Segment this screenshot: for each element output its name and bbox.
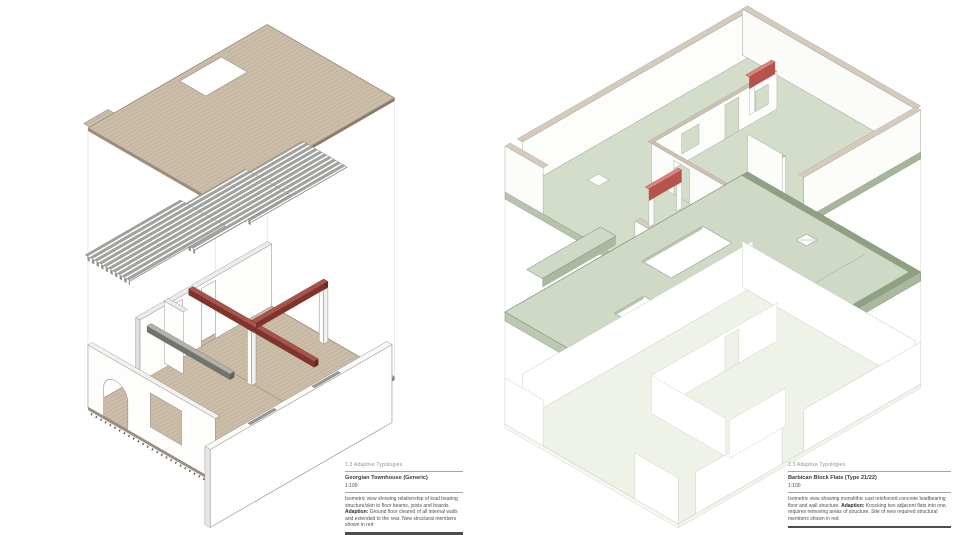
drawing-scale: 1:100 xyxy=(788,483,951,493)
drawing-title: Georgian Townhouse (Generic) xyxy=(345,475,463,482)
facade-end xyxy=(205,447,210,528)
adaption-label: Adaption: xyxy=(841,503,864,509)
caption-barbican: 1.3 Adaptive Typologies Barbican Block F… xyxy=(788,462,951,528)
drawing-sheet xyxy=(0,0,960,528)
barbican-exploded-axonometric xyxy=(505,6,921,528)
adaption-label: Adaption: xyxy=(345,509,368,515)
support-column xyxy=(247,327,256,386)
georgian-exploded-axonometric xyxy=(84,25,395,528)
section-header: 1.3 Adaptive Typologies xyxy=(788,462,951,472)
drawing-description: Isometric view showing monolithic cast r… xyxy=(788,496,951,522)
scale-bar xyxy=(345,532,463,534)
support-pier xyxy=(319,285,328,344)
description-text: Isometric view showing relationship of l… xyxy=(345,496,458,509)
section-header: 1.3 Adaptive Typologies xyxy=(345,462,463,472)
drawing-description: Isometric view showing relationship of l… xyxy=(345,496,463,529)
drawing-scale: 1:100 xyxy=(345,483,463,493)
caption-georgian: 1.3 Adaptive Typologies Georgian Townhou… xyxy=(345,462,463,535)
drawing-title: Barbican Block Flats (Type 21/22) xyxy=(788,475,951,482)
